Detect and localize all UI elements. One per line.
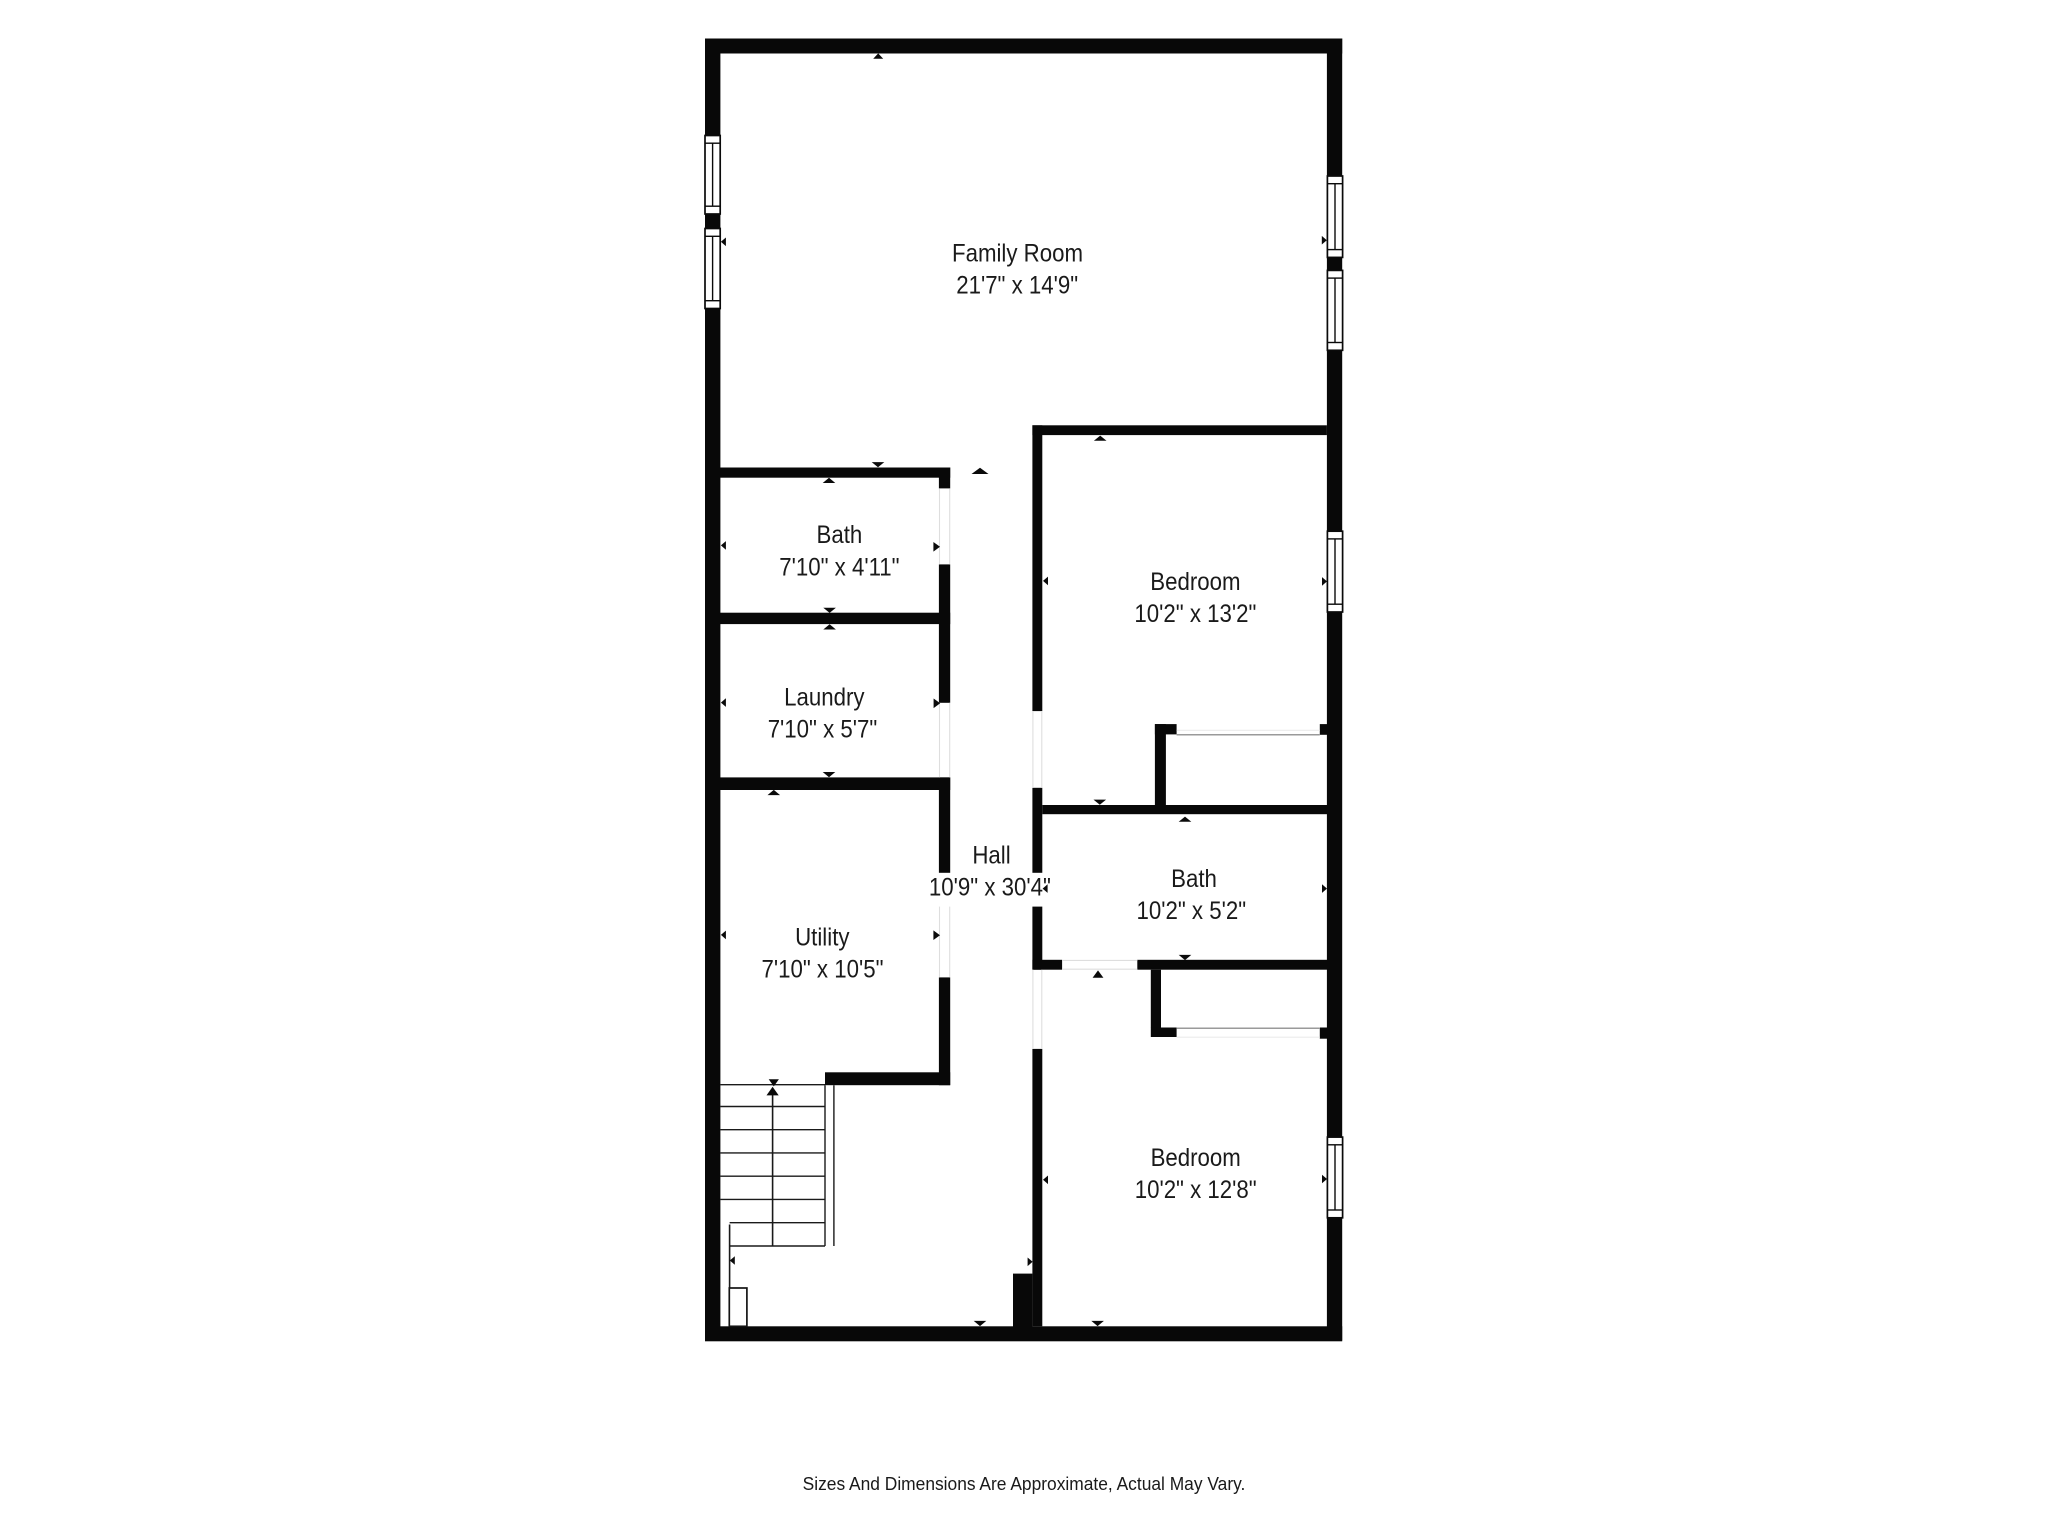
svg-text:21'7" x 14'9": 21'7" x 14'9": [956, 272, 1078, 299]
svg-text:10'2" x 13'2": 10'2" x 13'2": [1134, 601, 1256, 628]
svg-text:Utility: Utility: [795, 924, 850, 951]
svg-text:7'10" x 5'7": 7'10" x 5'7": [768, 716, 878, 743]
svg-text:10'9" x 30'4": 10'9" x 30'4": [929, 875, 1051, 902]
svg-text:Family Room: Family Room: [952, 240, 1083, 267]
svg-text:7'10" x 10'5": 7'10" x 10'5": [762, 956, 884, 983]
svg-text:Bath: Bath: [1171, 866, 1217, 893]
svg-text:7'10" x 4'11": 7'10" x 4'11": [779, 554, 899, 581]
svg-text:Hall: Hall: [972, 843, 1010, 870]
svg-text:Bedroom: Bedroom: [1150, 569, 1240, 596]
svg-text:Laundry: Laundry: [784, 684, 865, 711]
svg-text:Bath: Bath: [817, 522, 863, 549]
svg-text:Bedroom: Bedroom: [1151, 1145, 1241, 1172]
svg-text:10'2" x 12'8": 10'2" x 12'8": [1135, 1177, 1257, 1204]
svg-text:10'2" x 5'2": 10'2" x 5'2": [1136, 898, 1246, 925]
svg-text:Sizes And Dimensions Are Appro: Sizes And Dimensions Are Approximate, Ac…: [803, 1473, 1246, 1494]
